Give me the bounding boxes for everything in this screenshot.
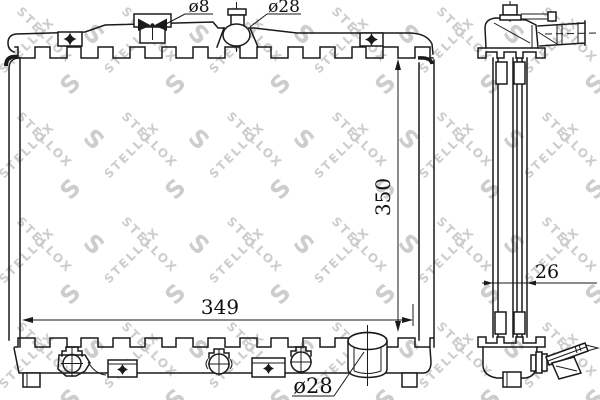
bottom-bracket-1 xyxy=(108,360,137,377)
side-core-bracket xyxy=(514,62,525,84)
top-small-fitting xyxy=(134,14,171,43)
left-mounting-foot xyxy=(23,373,40,387)
right-mounting-foot xyxy=(402,373,417,387)
stellox-watermark xyxy=(0,0,600,400)
drawing-svg: STELLOX STELLOX S S xyxy=(0,0,600,400)
top-left-bracket xyxy=(58,32,82,46)
label-outlet-diameter: ø28 xyxy=(293,374,332,398)
label-filler-diameter: ø28 xyxy=(268,0,300,17)
label-core-width: 349 xyxy=(201,295,239,319)
bottom-bracket-2 xyxy=(252,358,285,377)
radiator-technical-drawing: STELLOX STELLOX S S xyxy=(0,0,600,400)
side-core-bracket xyxy=(496,62,507,84)
side-foot xyxy=(503,372,521,387)
side-core-bracket xyxy=(495,312,506,334)
label-core-height: 350 xyxy=(371,178,395,216)
label-top-fitting-diameter: ø8 xyxy=(188,0,209,17)
label-core-depth: 26 xyxy=(535,261,559,283)
top-right-bracket xyxy=(360,33,383,46)
side-core-bracket xyxy=(514,312,525,334)
filler-cap-circle xyxy=(223,24,250,46)
